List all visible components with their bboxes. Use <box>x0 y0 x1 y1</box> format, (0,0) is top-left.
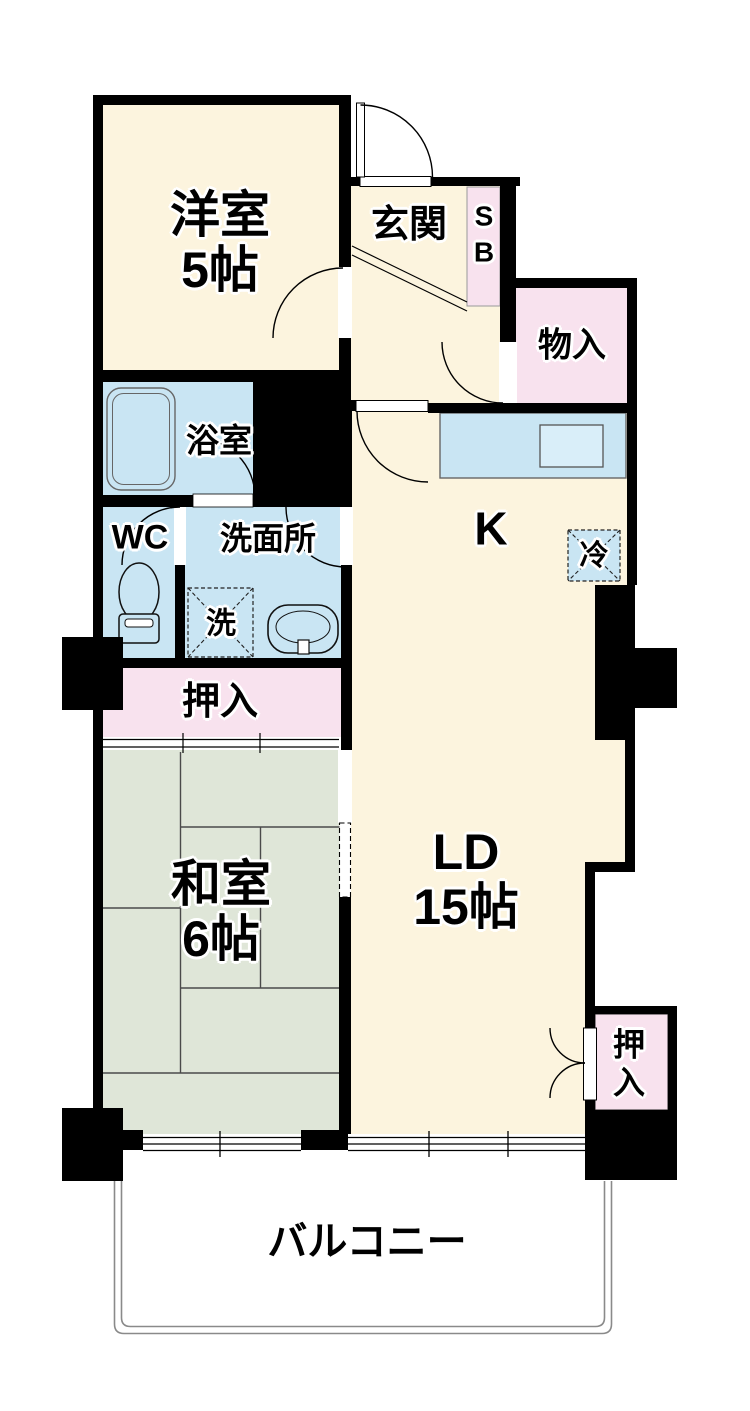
wc-door-opening <box>174 507 186 565</box>
wall-pillar <box>62 1108 123 1181</box>
wall <box>339 897 351 1143</box>
wall <box>500 177 516 342</box>
kitchen-door-sill <box>356 401 428 412</box>
wall-pillar <box>635 648 677 708</box>
wall <box>627 278 637 585</box>
wall <box>93 658 341 668</box>
entrance-door-arc <box>361 105 433 177</box>
japanese-room-label: 和室 6帖 <box>171 857 271 967</box>
wall <box>595 585 635 740</box>
western-room-label: 洋室 5帖 <box>170 188 270 298</box>
wall-pillar <box>62 637 123 710</box>
washroom-door-opening <box>340 507 353 565</box>
sliding-door-panel <box>340 823 351 897</box>
western-room-name: 洋室 <box>170 188 270 243</box>
wall <box>341 565 352 660</box>
wall <box>103 495 193 507</box>
entrance-door-sill <box>360 177 431 187</box>
wall <box>341 658 352 750</box>
wc-label: WC <box>112 519 169 556</box>
wall <box>253 370 345 502</box>
wall <box>341 402 352 507</box>
living-dining-label: LD 15帖 <box>413 825 519 935</box>
refrigerator-label: 冷 <box>579 541 608 573</box>
wall <box>93 95 350 105</box>
storage-door-opening <box>499 342 517 403</box>
western-room-door-opening <box>338 267 352 338</box>
storage-label: 物入 <box>538 327 606 364</box>
closet-ld-door-opening <box>584 1028 597 1100</box>
japanese-room-window <box>143 1134 301 1152</box>
wall <box>585 1006 595 1028</box>
kitchen-sink <box>540 425 603 467</box>
floor-plan: 洋室 5帖 玄関 S B 物入 浴室 WC 洗面所 洗 K 冷 押入 和室 6帖… <box>0 0 750 1411</box>
toilet-tank <box>119 614 159 643</box>
shoe-box-label: S B <box>474 199 494 272</box>
toilet-tank-slot <box>125 619 153 627</box>
wall <box>585 870 595 1007</box>
japanese-room-opening <box>338 750 352 823</box>
wash-basin-tap <box>298 640 309 654</box>
balcony-label: バルコニー <box>267 1220 466 1264</box>
wall <box>253 495 341 507</box>
living-window <box>348 1134 585 1152</box>
wall <box>585 1110 677 1180</box>
wall <box>93 95 103 1143</box>
kitchen-label: K <box>474 504 507 555</box>
bathroom-door-sill <box>193 494 253 507</box>
entrance-label: 玄関 <box>371 205 447 247</box>
wall <box>175 565 185 660</box>
wall <box>513 278 635 288</box>
bathtub <box>107 388 175 490</box>
wall <box>625 740 635 870</box>
bathroom-label: 浴室 <box>186 423 252 459</box>
wall <box>585 1006 677 1014</box>
wall <box>301 1130 348 1150</box>
toilet-bowl <box>119 563 159 621</box>
closet-hallway-label: 押入 <box>182 682 258 724</box>
washer-label: 洗 <box>206 608 236 641</box>
closet-ld-label: 押 入 <box>613 1026 645 1102</box>
washroom-label: 洗面所 <box>220 521 316 556</box>
entrance-door-panel <box>357 103 365 177</box>
wall <box>428 403 635 413</box>
western-room-size: 5帖 <box>170 243 270 298</box>
exterior-cutout <box>595 862 640 1010</box>
